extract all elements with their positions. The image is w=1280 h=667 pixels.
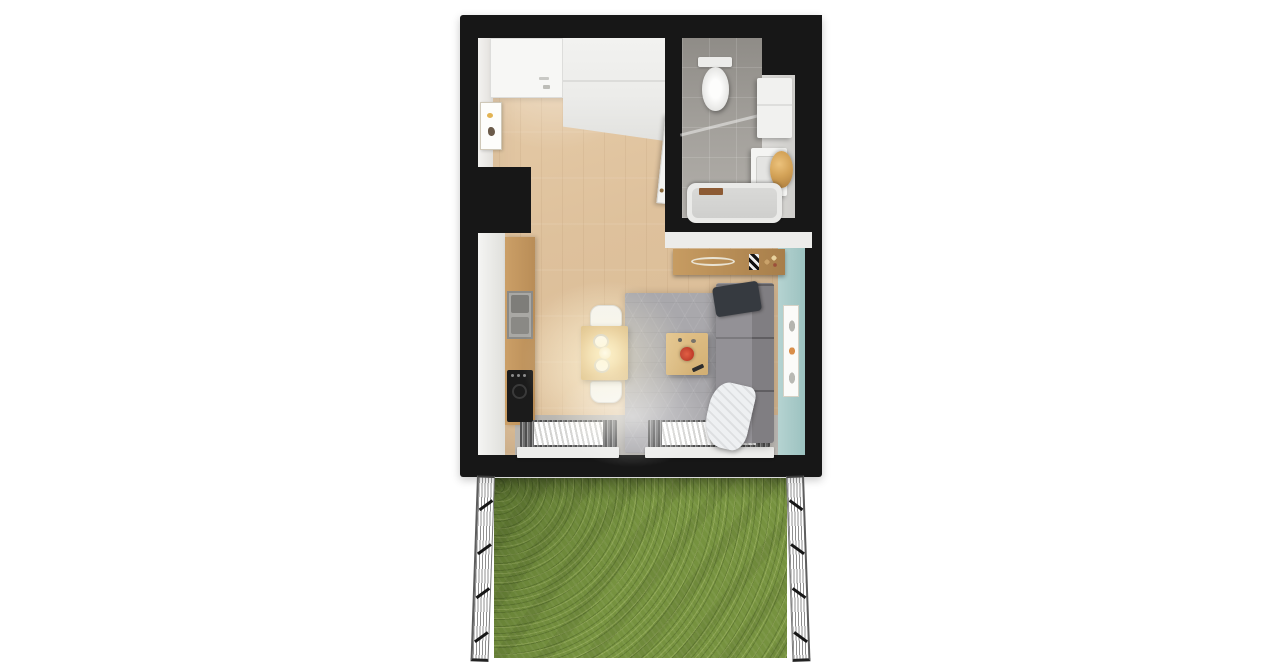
radiator-fins (534, 422, 603, 445)
console-sideboard (673, 249, 785, 275)
toilet (702, 67, 729, 111)
table-item (678, 338, 682, 342)
table-item (691, 339, 696, 343)
chevron-decor (749, 254, 759, 270)
fence-tick (479, 499, 494, 511)
remote-control (692, 364, 705, 373)
botanical-print-frame (783, 305, 799, 397)
window-sill-left (517, 447, 619, 458)
kitchen-sink (507, 291, 533, 339)
door-handle (539, 77, 549, 80)
window-sill-right (645, 447, 774, 458)
hall-wall-face (665, 232, 812, 248)
wall-picture (480, 102, 502, 150)
oval-dish (691, 257, 735, 266)
sink-basin-right (511, 317, 529, 334)
bathtub (687, 183, 782, 223)
plate (594, 358, 610, 373)
pendant-lamp (599, 347, 611, 359)
fence-tick (793, 631, 808, 643)
picture-art-mark (488, 127, 495, 136)
wardrobe-cabinet (563, 38, 665, 141)
sink-basin-left (511, 295, 529, 313)
dining-chair-bottom (590, 381, 622, 403)
radiator-left (520, 420, 617, 447)
grass-shadow-overlay (494, 478, 787, 658)
fence-tick (790, 543, 805, 555)
washer-cabinet (757, 78, 792, 138)
picture-art-dot (487, 113, 493, 118)
fence-tick (792, 587, 807, 599)
apartment-walls (460, 15, 822, 477)
fence-tick (477, 543, 492, 555)
garden-grass (494, 478, 787, 658)
garden-fence-left (471, 475, 495, 662)
door-hinge (543, 85, 550, 89)
structural-wall-notch (460, 167, 531, 233)
sofa (716, 283, 774, 443)
bathroom-door-handle (659, 188, 663, 192)
stove-burner (512, 384, 527, 399)
stove-knobs (511, 374, 514, 377)
fence-tick (789, 499, 804, 511)
entrance-door (490, 38, 563, 98)
red-bowl (680, 347, 694, 361)
wardrobe-seam (563, 80, 665, 82)
toilet-tank (698, 57, 732, 67)
kitchen-cabinets (478, 232, 505, 455)
kitchen-stove (507, 370, 533, 422)
fence-tick (476, 587, 491, 599)
bathroom (665, 15, 822, 248)
bath-caddy (699, 188, 723, 195)
decor-bottles (763, 254, 779, 268)
fence-tick (474, 631, 489, 643)
floor-plan-scene (0, 0, 1280, 667)
coffee-table (666, 333, 708, 375)
cabinet-seam (757, 104, 792, 106)
garden-fence-right (786, 475, 810, 662)
dining-chair-top (590, 305, 622, 327)
